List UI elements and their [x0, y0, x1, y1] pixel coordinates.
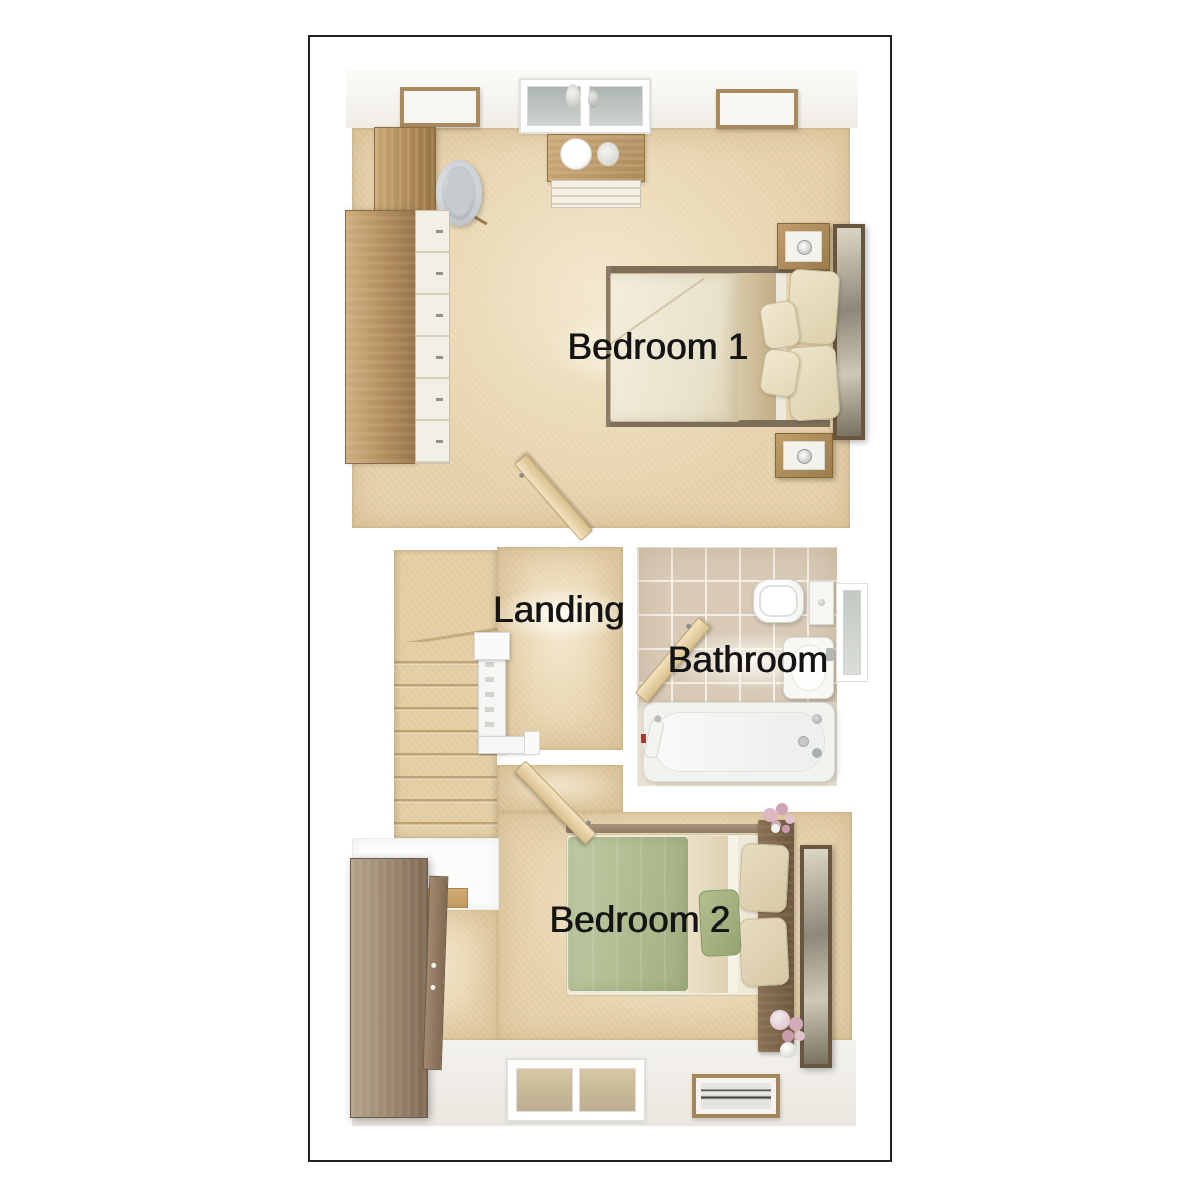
stair-winders	[394, 550, 497, 642]
bedroom-2-label: Bedroom 2	[550, 899, 731, 941]
nightstand-with-lamp	[775, 433, 833, 478]
drawer-unit	[345, 210, 417, 464]
landing-label: Landing	[493, 589, 625, 631]
dresser-drawers	[551, 180, 641, 208]
picture-frame	[692, 1074, 780, 1118]
flower-vase	[757, 800, 797, 840]
pillow	[738, 917, 789, 987]
decorative-plate	[560, 138, 592, 170]
landing-floor	[497, 547, 623, 750]
picture-frame	[400, 87, 480, 127]
vase	[588, 90, 598, 108]
bath-accessory	[641, 734, 646, 743]
flower-blossom	[770, 1010, 790, 1030]
pillow	[738, 843, 789, 913]
vase	[597, 142, 619, 166]
wardrobe	[350, 858, 428, 1118]
floorplan-canvas: Bedroom 1 Landing Bathroom	[0, 0, 1200, 1200]
flower-vase	[766, 1008, 814, 1066]
picture-frame	[716, 89, 798, 129]
pillows	[736, 840, 792, 990]
pillow	[759, 347, 802, 398]
bedroom-1-label: Bedroom 1	[568, 326, 749, 368]
toilet	[753, 579, 804, 623]
window	[519, 78, 651, 134]
window	[836, 583, 868, 682]
newel-post	[474, 632, 510, 660]
bath-taps	[812, 714, 822, 724]
window	[506, 1058, 646, 1122]
bath-drain	[798, 736, 809, 747]
pillows	[786, 268, 840, 426]
drawer-unit-drawers	[415, 210, 450, 464]
toilet-cistern	[809, 581, 834, 625]
vase	[771, 824, 780, 833]
vase	[566, 84, 580, 110]
pillow	[759, 299, 802, 350]
vase	[780, 1042, 796, 1058]
nightstand-with-lamp	[777, 223, 830, 270]
bathroom-label: Bathroom	[668, 639, 828, 681]
flower-blossom	[763, 808, 777, 822]
rail-post	[524, 731, 540, 755]
